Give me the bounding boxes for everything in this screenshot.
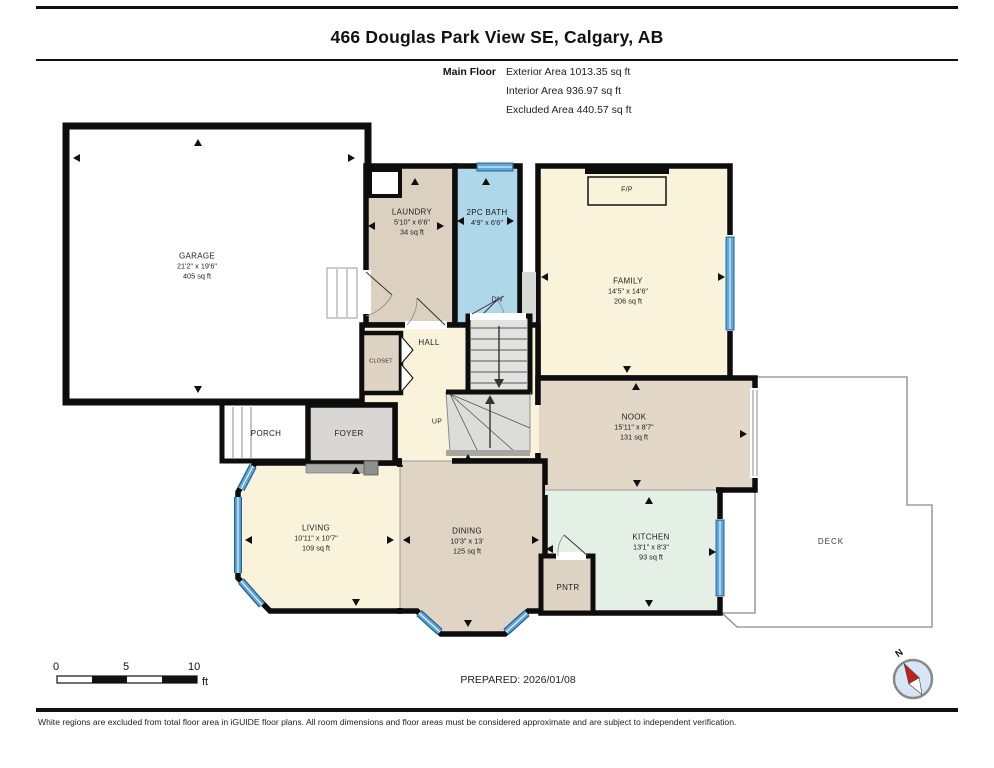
scale-tick-0: 0 — [53, 661, 59, 673]
scale-tick-5: 5 — [123, 661, 129, 673]
stairs-down-label: DN — [492, 297, 503, 306]
scale-bar — [57, 676, 197, 683]
scale-tick-10: 10 — [188, 661, 200, 673]
scale-unit: ft — [202, 676, 208, 688]
porch-label: PORCH — [251, 429, 281, 439]
foyer-label: FOYER — [334, 429, 363, 439]
bath-room — [455, 166, 520, 325]
stairs-up — [446, 392, 530, 456]
fireplace-wall — [585, 166, 669, 174]
disclaimer-text: White regions are excluded from total fl… — [38, 717, 968, 727]
bath-label: 2PC BATH 4'9" x 6'6" — [467, 208, 508, 228]
deck-label: DECK — [818, 537, 844, 547]
laundry-notch — [370, 170, 400, 196]
hall-label: HALL — [418, 338, 439, 348]
bottom-border-line — [36, 708, 958, 712]
fireplace-label: F/P — [621, 187, 633, 196]
nook-label: NOOK 15'11" x 8'7" 131 sq ft — [614, 413, 653, 442]
stairs-up-label: UP — [432, 419, 442, 428]
pantry-label: PNTR — [557, 583, 580, 593]
family-label: FAMILY 14'5" x 14'6" 206 sq ft — [608, 277, 648, 306]
floorplan-page: { "header": { "title": "466 Douglas Park… — [0, 0, 994, 768]
laundry-label: LAUNDRY 5'10" x 6'6" 34 sq ft — [392, 208, 432, 237]
kitchen-label: KITCHEN 13'1" x 8'3" 93 sq ft — [632, 533, 669, 562]
dining-label: DINING 10'3" x 13' 125 sq ft — [450, 527, 483, 556]
prepared-date: PREPARED: 2026/01/08 — [368, 674, 668, 686]
compass-icon — [894, 660, 932, 698]
living-label: LIVING 10'11" x 10'7" 109 sq ft — [294, 524, 338, 553]
garage-label: GARAGE 21'2" x 19'6" 405 sq ft — [177, 252, 217, 281]
floorplan-drawing — [0, 0, 994, 768]
closet-label: CLOSET — [369, 358, 393, 365]
